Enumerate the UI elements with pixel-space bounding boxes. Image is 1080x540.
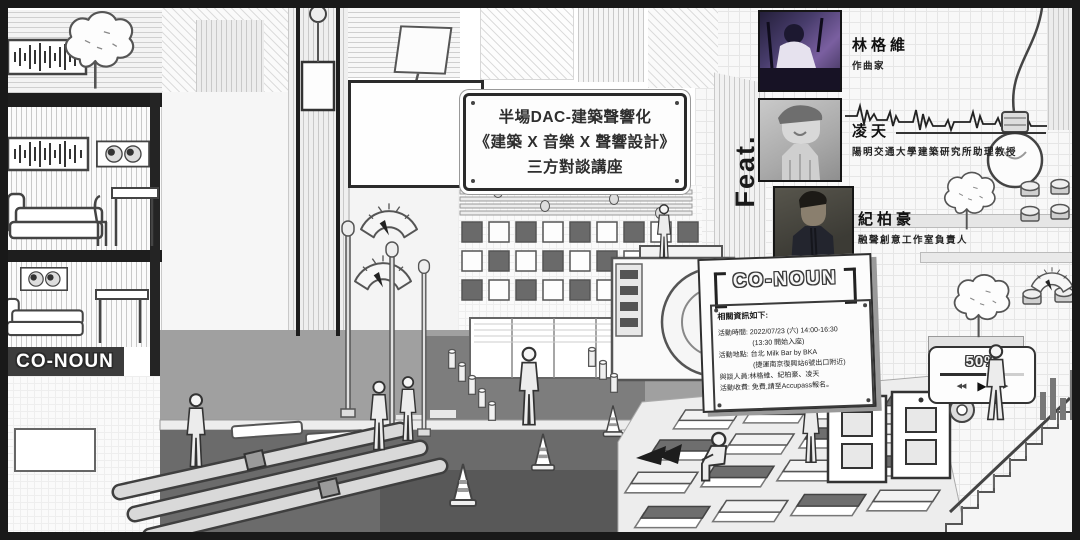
- speaker-name-2: 凌天: [852, 120, 890, 141]
- gauge-meter-right: [1032, 267, 1073, 292]
- person-walking-right: [978, 344, 1014, 426]
- bracket-right-icon: [844, 268, 857, 304]
- rewind-icon: ◀◀: [957, 382, 966, 390]
- speaker-name-3: 紀柏豪: [858, 208, 915, 229]
- billboard-bolt: [675, 101, 679, 105]
- board-bolt: [714, 308, 718, 312]
- elevator-tower: [296, 6, 340, 336]
- speaker-photo-2-art: [760, 100, 840, 180]
- fader-slats: [460, 187, 692, 219]
- waveform-art-mid: [8, 138, 88, 170]
- street-brand-sign: CO-NOUN: [6, 347, 124, 376]
- desk-and-chair: [95, 188, 158, 246]
- event-title-line-2: 《建築 X 音樂 X 聲響設計》: [475, 130, 676, 155]
- rooftop-tree-left: [66, 12, 133, 89]
- street-illustration: [0, 0, 1080, 540]
- billboard-bolt: [675, 179, 679, 183]
- terrace-tree-1: [945, 172, 995, 229]
- speaker-title-3: 融聲創意工作室負責人: [858, 232, 968, 246]
- table-low-legs: [100, 299, 140, 343]
- light-bulb: [988, 8, 1042, 187]
- info-board-brand: CO-NOUN: [710, 263, 861, 296]
- gauge-meter-1: [361, 203, 417, 237]
- eyes-art-low: [21, 268, 67, 290]
- event-poster: 半場DAC-建築聲響化 《建築 X 音樂 X 聲響設計》 三方對談講座 Feat…: [0, 0, 1080, 540]
- street-brand-text: CO-NOUN: [16, 351, 114, 373]
- info-board-brand-text: CO-NOUN: [732, 267, 837, 293]
- speaker-name-1: 林格維: [852, 34, 909, 55]
- bracket-left-icon: [714, 272, 727, 308]
- crane-hook-panel: [394, 25, 453, 74]
- speaker-title-1: 作曲家: [852, 58, 885, 72]
- elevator-cab: [302, 62, 334, 110]
- table-low: [96, 290, 148, 299]
- speaker-name-2-rule: [896, 132, 1046, 134]
- event-title-line-3: 三方對談講座: [527, 155, 623, 180]
- event-title-line-1: 半場DAC-建築聲響化: [499, 105, 652, 130]
- sofa-low: [6, 299, 83, 335]
- board-bolt: [866, 398, 870, 402]
- speaker-photo-lingtian: [758, 98, 842, 182]
- info-board-details: 相關資訊如下: 活動時間: 2022/07/23 (六) 14:00-16:30…: [710, 299, 875, 412]
- billboard-bolt: [471, 101, 475, 105]
- speaker-photo-1-art: [760, 12, 840, 90]
- info-heading: 相關資訊如下:: [717, 306, 867, 322]
- billboard-bolt: [471, 179, 475, 183]
- gauge-meter-2: [355, 255, 411, 289]
- eyes-art-mid: [97, 141, 149, 166]
- event-title-billboard: 半場DAC-建築聲響化 《建築 X 音樂 X 聲響設計》 三方對談講座: [463, 93, 687, 191]
- sofa-mid: [8, 194, 102, 238]
- speaker-title-2: 陽明交通大學建築研究所助理教授: [852, 144, 1017, 158]
- terrace-tree-2: [955, 275, 1010, 337]
- event-info-board: CO-NOUN 相關資訊如下: 活動時間: 2022/07/23 (六) 14:…: [697, 253, 876, 413]
- left-building-interiors: [6, 40, 158, 343]
- speaker-photo-linkewei: [758, 10, 842, 92]
- board-bolt: [717, 403, 721, 407]
